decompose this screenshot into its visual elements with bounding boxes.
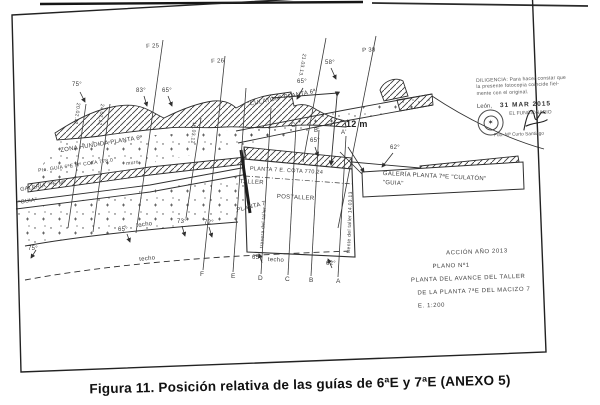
scanned-figure-page: F 25F 26P 3821.03.13.75°83°65°65°58°62°6… <box>0 0 600 405</box>
title-block-line: PLANO Nº1 <box>432 260 554 270</box>
title-block: ACCIÓN AÑO 2013 PLANO Nº1 PLANTA DEL AVA… <box>404 247 556 317</box>
title-block-line: PLANTA DEL AVANCE DEL TALLER <box>411 273 555 284</box>
scan-edge-artifact <box>40 2 588 6</box>
plan-drawing <box>0 0 600 405</box>
notary-stamp: DILIGENCIA: Para hacer constar que la pr… <box>476 74 587 110</box>
title-block-line: DE LA PLANTA 7ªE DEL MACIZO 7 <box>417 286 555 297</box>
title-block-line: E. 1:200 <box>418 299 556 310</box>
